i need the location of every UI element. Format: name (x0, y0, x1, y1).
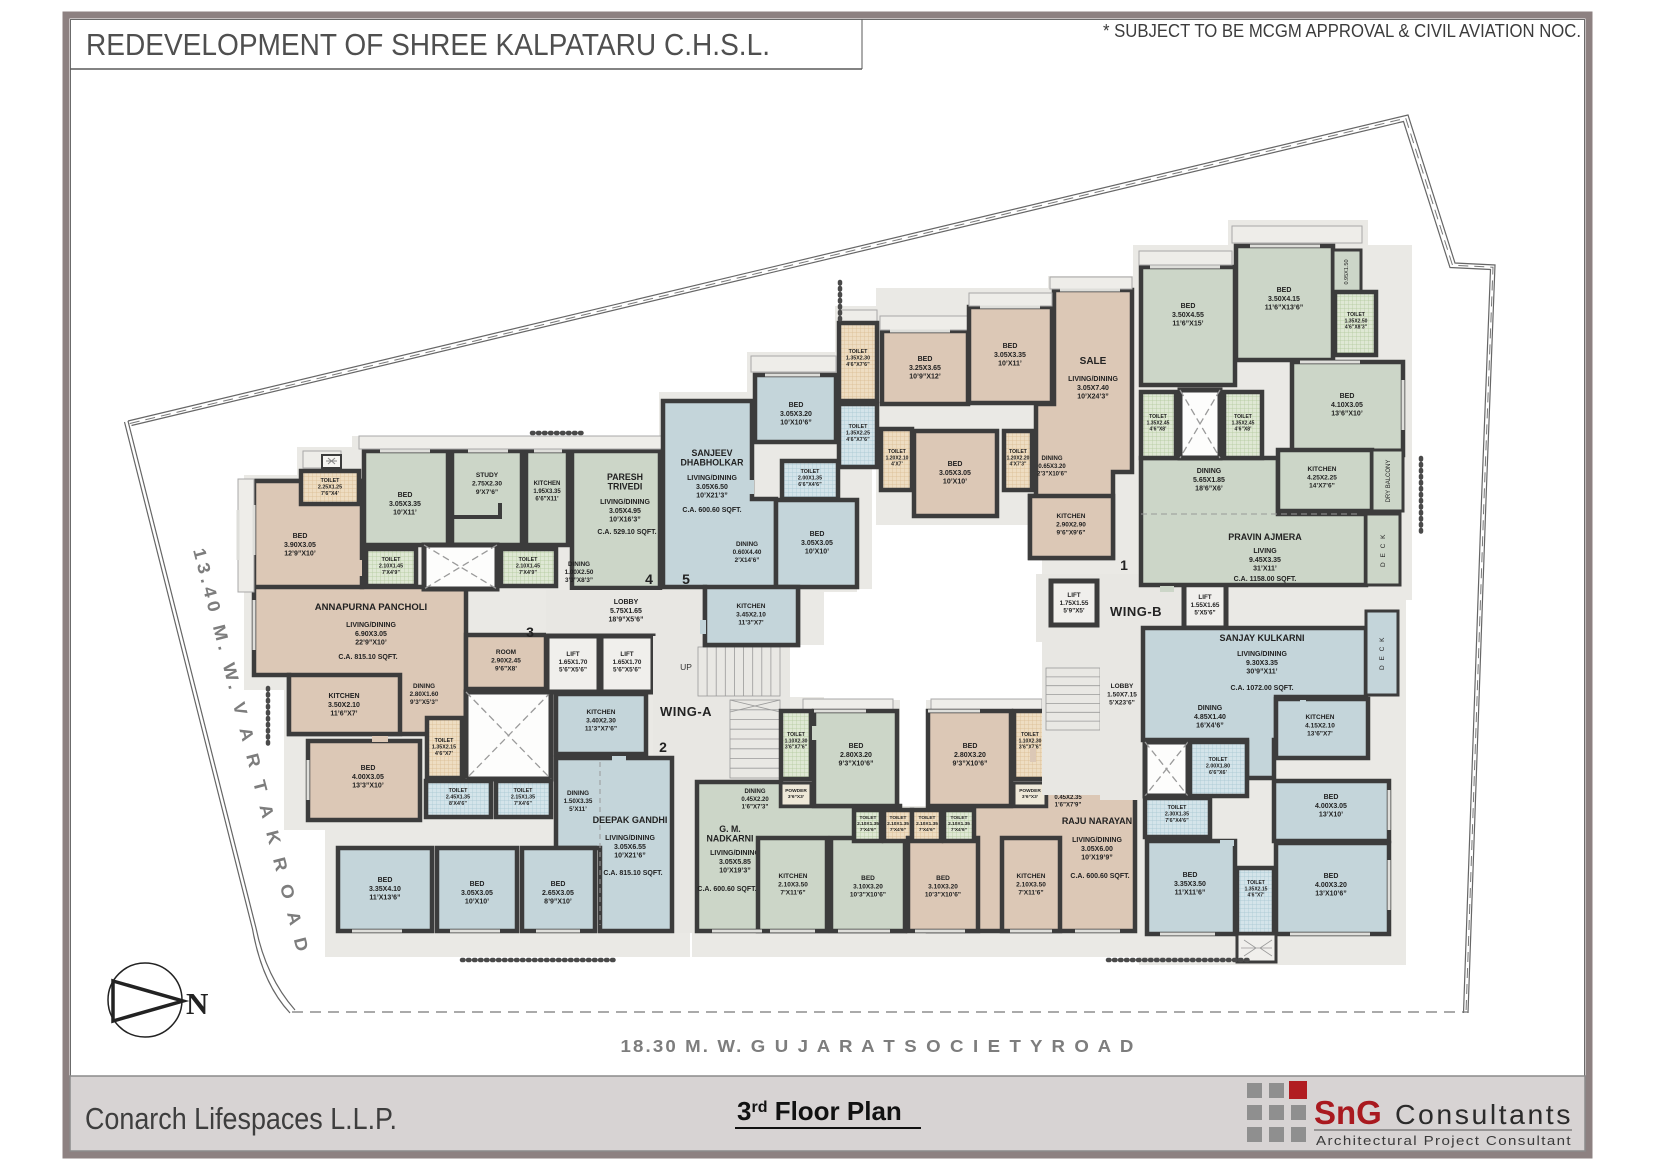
svg-text:C.A. 600.60 SQFT.: C.A. 600.60 SQFT. (682, 507, 741, 514)
svg-text:TOILET2.45X1.358’X4’6”: TOILET2.45X1.358’X4’6” (446, 788, 470, 807)
svg-text:TOILET2.15X1.357’X4’6”: TOILET2.15X1.357’X4’6” (511, 788, 535, 807)
svg-text:PARESHTRIVEDI: PARESHTRIVEDI (607, 472, 643, 492)
svg-text:TOILET2.10X1.457’X4’9”: TOILET2.10X1.457’X4’9” (516, 557, 540, 576)
svg-text:WING-B: WING-B (1110, 604, 1162, 619)
svg-text:LOBBY1.50X7.155’X23’6”: LOBBY1.50X7.155’X23’6” (1107, 683, 1137, 707)
svg-text:5: 5 (682, 571, 690, 587)
svg-text:REDEVELOPMENT OF SHREE KALPATA: REDEVELOPMENT OF SHREE KALPATARU C.H.S.L… (86, 27, 770, 62)
svg-text:KITCHEN2.10X3.507’X11’6”: KITCHEN2.10X3.507’X11’6” (778, 873, 808, 897)
svg-text:Consultants: Consultants (1395, 1099, 1573, 1130)
svg-text:TOILET1.35X2.454’6”X8’: TOILET1.35X2.454’6”X8’ (1232, 414, 1255, 433)
svg-text:C.A. 600.60 SQFT.: C.A. 600.60 SQFT. (697, 886, 756, 893)
svg-text:PRAVIN AJMERA: PRAVIN AJMERA (1228, 532, 1302, 542)
svg-text:C.A. 600.60 SQFT.: C.A. 600.60 SQFT. (1070, 873, 1129, 880)
svg-text:TOILET1.35X2.154’6”X7’: TOILET1.35X2.154’6”X7’ (432, 738, 456, 757)
svg-text:TOILET1.35X2.254’6”X7’6”: TOILET1.35X2.254’6”X7’6” (846, 424, 870, 443)
svg-text:TOILET2.00X1.356’6”X4’6”: TOILET2.00X1.356’6”X4’6” (798, 469, 822, 488)
svg-text:DINING5.65X1.8518’6”X6’: DINING5.65X1.8518’6”X6’ (1193, 468, 1225, 493)
svg-text:KITCHEN3.45X2.1011’3”X7’: KITCHEN3.45X2.1011’3”X7’ (736, 603, 766, 627)
svg-text:N: N (186, 986, 208, 1021)
svg-text:2: 2 (659, 739, 667, 755)
svg-text:SALE: SALE (1080, 356, 1107, 367)
svg-text:TOILET2.10X1.457’X4’9”: TOILET2.10X1.457’X4’9” (379, 557, 403, 576)
svg-text:3: 3 (526, 624, 534, 640)
svg-text:Architectural Project Consulta: Architectural Project Consultant (1316, 1133, 1572, 1148)
svg-text:TOILET2.10X1.357’X4’6”: TOILET2.10X1.357’X4’6” (948, 815, 970, 833)
svg-text:* SUBJECT TO BE MCGM APPROVAL: * SUBJECT TO BE MCGM APPROVAL & CIVIL AV… (1103, 20, 1581, 41)
svg-text:DEEPAK GANDHI: DEEPAK GANDHI (593, 815, 668, 825)
svg-text:TOILET1.10X2.303’6”X7’6”: TOILET1.10X2.303’6”X7’6” (785, 732, 808, 751)
svg-text:D E C K: D E C K (1379, 636, 1386, 670)
svg-text:C.A. 1072.00 SQFT.: C.A. 1072.00 SQFT. (1230, 685, 1293, 692)
svg-text:KITCHEN3.50X2.1011’6”X7’: KITCHEN3.50X2.1011’6”X7’ (328, 693, 360, 718)
svg-text:TOILET2.10X1.357’X4’6”: TOILET2.10X1.357’X4’6” (887, 815, 909, 833)
svg-text:DINING0.60X4.402’X14’6”: DINING0.60X4.402’X14’6” (733, 541, 762, 564)
svg-text:DINING0.45X2.201’6”X7’3”: DINING0.45X2.201’6”X7’3” (741, 789, 769, 811)
svg-text:SnG: SnG (1314, 1094, 1382, 1131)
svg-text:TOILET1.35X2.454’6”X8’: TOILET1.35X2.454’6”X8’ (1147, 414, 1170, 433)
svg-text:TOILET2.10X1.357’X4’6”: TOILET2.10X1.357’X4’6” (916, 815, 938, 833)
svg-text:TOILET2.25X1.257’6”X4’: TOILET2.25X1.257’6”X4’ (318, 478, 342, 497)
svg-text:TOILET1.20X2.204’X7’3”: TOILET1.20X2.204’X7’3” (1007, 449, 1030, 468)
svg-text:TOILET2.10X1.357’X4’6”: TOILET2.10X1.357’X4’6” (857, 815, 879, 833)
svg-text:DRY BALCONY: DRY BALCONY (1386, 460, 1392, 503)
svg-text:LIVING9.45X3.3531’X11’: LIVING9.45X3.3531’X11’ (1249, 548, 1281, 573)
svg-text:TOILET1.35X2.504’6”X8’3”: TOILET1.35X2.504’6”X8’3” (1345, 312, 1368, 331)
svg-text:KITCHEN1.95X3.356’6”X11’: KITCHEN1.95X3.356’6”X11’ (533, 481, 561, 503)
svg-text:TOILET2.30X1.357’6”X4’6”: TOILET2.30X1.357’6”X4’6” (1165, 805, 1189, 824)
svg-text:C.A. 815.10 SQFT.: C.A. 815.10 SQFT. (338, 654, 397, 661)
svg-text:KITCHEN2.90X2.909’6”X9’6”: KITCHEN2.90X2.909’6”X9’6” (1056, 513, 1086, 537)
svg-text:DINING2.80X1.609’3”X5’3”: DINING2.80X1.609’3”X5’3” (410, 683, 439, 706)
svg-text:KITCHEN3.40X2.3011’3”X7’6”: KITCHEN3.40X2.3011’3”X7’6” (585, 709, 617, 733)
svg-text:D E C K: D E C K (1380, 533, 1387, 567)
svg-text:0.95X1.50: 0.95X1.50 (1344, 259, 1350, 284)
svg-text:1: 1 (1120, 557, 1128, 573)
svg-text:WING-A: WING-A (660, 704, 712, 719)
svg-text:STUDY2.75X2.309’X7’6”: STUDY2.75X2.309’X7’6” (472, 472, 502, 496)
svg-text:TOILET2.00X1.806’6”X6’: TOILET2.00X1.806’6”X6’ (1206, 757, 1230, 776)
svg-text:C.A. 815.10 SQFT.: C.A. 815.10 SQFT. (603, 870, 662, 877)
svg-text:DINING1.00X2.503’3”X8’3”: DINING1.00X2.503’3”X8’3” (565, 561, 594, 584)
svg-text:DINING4.85X1.4016’X4’6”: DINING4.85X1.4016’X4’6” (1194, 705, 1226, 730)
svg-text:KITCHEN4.15X2.1013’6”X7’: KITCHEN4.15X2.1013’6”X7’ (1305, 714, 1335, 738)
svg-text:TOILET1.10X2.303’6”X7’6”: TOILET1.10X2.303’6”X7’6” (1019, 732, 1042, 751)
svg-text:TOILET1.35X2.154’6”X7’: TOILET1.35X2.154’6”X7’ (1245, 880, 1268, 899)
svg-text:18.30 M. W. G U J A R A T: 18.30 M. W. G U J A R A T S O C I E T Y … (621, 1036, 1136, 1056)
svg-text:SANJAY KULKARNI: SANJAY KULKARNI (1219, 633, 1304, 643)
svg-text:C.A. 529.10 SQFT.: C.A. 529.10 SQFT. (597, 529, 656, 536)
svg-text:UP: UP (680, 662, 692, 672)
svg-text:4: 4 (645, 571, 653, 587)
svg-text:Conarch Lifespaces L.L.P.: Conarch Lifespaces L.L.P. (85, 1101, 397, 1136)
svg-text:RAJU NARAYAN: RAJU NARAYAN (1062, 816, 1132, 826)
svg-text:TOILET1.35X2.304’6”X7’6”: TOILET1.35X2.304’6”X7’6” (846, 349, 870, 368)
svg-text:ANNAPURNA PANCHOLI: ANNAPURNA PANCHOLI (315, 602, 427, 613)
svg-text:KITCHEN2.10X3.507’X11’6”: KITCHEN2.10X3.507’X11’6” (1016, 873, 1046, 897)
svg-text:KITCHEN4.25X2.2514’X7’6”: KITCHEN4.25X2.2514’X7’6” (1307, 466, 1337, 490)
svg-text:C.A. 1158.00 SQFT.: C.A. 1158.00 SQFT. (1234, 576, 1297, 583)
